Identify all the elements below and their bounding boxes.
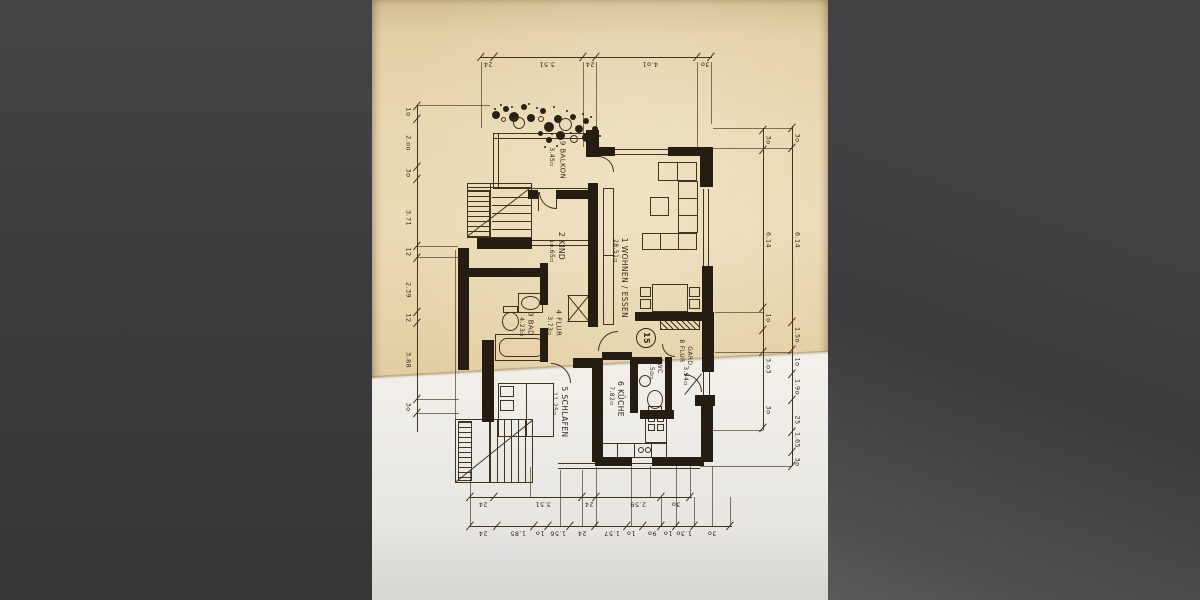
dim-label: 1.65 — [794, 432, 801, 448]
dim-label: 3o — [405, 169, 412, 178]
dim-label: 1.85 — [510, 530, 526, 537]
furniture-rect — [648, 424, 655, 431]
plant-dot — [590, 116, 592, 118]
wall-segment — [588, 183, 598, 327]
dim-line — [763, 128, 764, 430]
furniture-rect — [650, 197, 669, 216]
extension-line — [694, 497, 695, 526]
extension-line — [631, 466, 632, 526]
plant-circle — [575, 125, 583, 133]
plant-circle-outline — [570, 135, 578, 143]
plant-circle-outline — [559, 118, 572, 131]
thin-line — [614, 149, 668, 150]
plant-circle — [540, 108, 546, 114]
wall-segment — [540, 263, 548, 305]
furniture-rect — [500, 386, 514, 397]
dim-label: 3.88 — [405, 352, 412, 368]
hatch-area — [489, 419, 533, 483]
plant-circle — [546, 137, 552, 143]
room-area-balkon: 3.45▫ — [548, 147, 554, 166]
plant-circle — [503, 106, 509, 112]
plant-dot — [570, 132, 572, 134]
plant-circle-outline — [538, 116, 544, 122]
room-label-gard: 8 FLUR — [678, 339, 684, 362]
room-label-schlafen: 5 SCHLAFEN — [560, 387, 568, 438]
plant-circle — [521, 104, 527, 110]
plant-dot — [494, 108, 496, 110]
extension-line — [697, 62, 698, 147]
door-swing-arc — [539, 192, 556, 209]
room-area-wc: 1.5o▫ — [648, 360, 654, 379]
dim-label: 24 — [483, 61, 492, 68]
plant-dot — [511, 106, 513, 108]
dim-label: 3.51 — [535, 501, 551, 508]
room-area-gard: 3.94▫ — [682, 366, 688, 385]
photo-stage: 243.51244.o13o243.51242.593o241.851o1.56… — [0, 0, 1200, 600]
fixture-oval — [638, 447, 644, 453]
plant-dot — [528, 103, 530, 105]
extension-line — [713, 128, 792, 129]
extension-line — [676, 466, 677, 526]
dim-label: 24 — [577, 530, 586, 537]
dim-label: 1.3o — [676, 530, 692, 537]
plant-dot — [500, 104, 502, 106]
dim-label: 3o — [794, 458, 801, 467]
thin-line — [498, 133, 499, 189]
wall-segment — [630, 357, 638, 413]
wall-segment — [477, 238, 532, 249]
room-area-wohnen: 28.51▫ — [612, 239, 618, 263]
extension-line — [661, 497, 662, 526]
wall-segment — [640, 410, 674, 419]
door-swing-arc — [551, 363, 571, 383]
wall-segment — [556, 190, 592, 199]
wall-segment — [528, 190, 538, 199]
extension-line — [711, 62, 712, 124]
dim-label: 24 — [585, 61, 594, 68]
plant-dot — [536, 107, 538, 109]
dim-label: 3.51 — [539, 61, 555, 68]
wall-segment — [592, 358, 603, 462]
dim-label: 24 — [584, 501, 593, 508]
wall-segment — [482, 340, 494, 422]
plant-circle-outline — [513, 117, 525, 129]
furniture-rect — [689, 287, 700, 297]
wall-segment — [458, 248, 469, 370]
furniture-rect — [500, 400, 514, 411]
furniture-rect — [658, 162, 697, 181]
room-label-balkon: 9 BALKON — [558, 141, 565, 179]
fixture-oval — [521, 296, 540, 310]
room-label-bad: 3 BAD — [526, 312, 533, 336]
thin-line — [558, 468, 700, 469]
door-swing-arc — [598, 156, 614, 172]
plant-circle — [538, 131, 543, 136]
extension-line — [713, 148, 792, 149]
dim-label: 1.9o — [794, 379, 801, 395]
furniture-rect — [678, 181, 698, 233]
dim-label: 1o — [536, 530, 545, 537]
dim-label: 3o — [765, 406, 772, 415]
wall-segment — [595, 457, 632, 466]
room-area-schlafen: 11.25▫ — [551, 392, 557, 416]
hatch-area — [458, 421, 472, 481]
dim-label: 1.5o — [794, 327, 801, 343]
fixture-oval — [647, 390, 663, 409]
plant-circle — [570, 114, 576, 120]
thin-line — [708, 189, 709, 267]
dim-label: 3.71 — [405, 210, 412, 226]
dim-label: 24 — [478, 501, 487, 508]
plant-dot — [551, 133, 553, 135]
dim-label: 3o — [701, 61, 710, 68]
thin-line — [614, 154, 668, 155]
dim-label: 1o — [794, 358, 801, 367]
plant-dot — [582, 113, 584, 115]
extension-line — [713, 430, 763, 431]
plant-circle — [544, 122, 554, 132]
plant-circle — [492, 111, 500, 119]
room-label-wohnen: 1 WOHNEN / ESSEN — [620, 238, 628, 318]
dim-label: 9o — [648, 530, 657, 537]
wall-segment — [602, 352, 632, 360]
plant-circle — [527, 114, 535, 122]
furniture-rect — [689, 299, 700, 309]
dim-label: 24 — [478, 530, 487, 537]
furniture-rect — [657, 424, 664, 431]
extension-line — [455, 250, 456, 420]
plant-dot — [544, 146, 546, 148]
extension-line — [582, 470, 583, 526]
dim-label: 1o — [627, 530, 636, 537]
wall-segment — [598, 147, 615, 156]
wall-segment — [702, 312, 714, 372]
extension-line — [417, 413, 459, 414]
extension-line — [417, 257, 458, 258]
extension-line — [417, 105, 490, 106]
thin-line — [703, 372, 704, 397]
thin-line — [703, 189, 704, 267]
plant-dot — [566, 110, 568, 112]
dim-label: 3o — [405, 403, 412, 412]
room-area-bad: 4.23▫ — [518, 317, 524, 336]
dim-line — [417, 105, 418, 432]
furniture-rect — [652, 284, 688, 312]
wall-segment — [701, 404, 713, 462]
plant-dot — [553, 106, 555, 108]
dim-label: 1.56 — [550, 530, 566, 537]
dim-tick — [759, 423, 767, 432]
room-label-kind: 2 KIND — [557, 232, 565, 260]
dim-label: 1o — [405, 108, 412, 117]
extension-line — [690, 466, 691, 497]
dim-label: 6.14 — [765, 232, 772, 248]
dim-label: 1o — [664, 530, 673, 537]
furniture-rect — [600, 443, 667, 458]
dim-label: 12 — [405, 313, 412, 322]
dim-label: 3o — [794, 134, 801, 143]
thin-line — [493, 133, 494, 189]
extension-line — [715, 352, 792, 353]
plant-circle — [583, 118, 589, 124]
room-area-kueche: 7.82▫ — [608, 386, 614, 405]
dim-label: 3o — [672, 501, 681, 508]
plant-dot — [599, 135, 601, 137]
letterbox-right — [828, 0, 1200, 600]
wall-segment — [665, 357, 672, 410]
extension-line — [712, 466, 713, 526]
room-label-wc: 7WC — [656, 358, 662, 373]
dim-label: 3o — [765, 136, 772, 145]
wall-segment — [462, 268, 542, 277]
extension-line — [730, 497, 731, 526]
extension-line — [715, 312, 763, 313]
dim-label: 3.o3 — [765, 358, 772, 374]
fixture-oval — [502, 312, 519, 331]
plant-circle-outline — [501, 117, 506, 122]
dim-label: 6.14 — [794, 232, 801, 248]
extension-line — [417, 399, 459, 400]
extension-line — [700, 466, 792, 467]
dim-label: 12 — [405, 247, 412, 256]
room-label-gard-2: GARD. — [686, 346, 692, 367]
bathtub-inner — [499, 338, 544, 357]
extension-line — [650, 466, 651, 497]
room-area-kind: 1o.65▫ — [548, 239, 554, 262]
door-swing-arc — [598, 331, 618, 351]
dim-label: 2.59 — [630, 501, 646, 508]
dim-label: 4.o1 — [642, 61, 658, 68]
dim-label: 25 — [794, 415, 801, 424]
extension-line — [417, 246, 458, 247]
wall-segment — [652, 457, 704, 466]
dim-label: 1o — [765, 314, 772, 323]
room-area-flur: 3.73▫ — [546, 316, 552, 335]
wall-segment — [700, 147, 713, 187]
extension-line — [481, 62, 482, 128]
dim-label: 3o — [708, 530, 717, 537]
extension-line — [560, 470, 561, 526]
dim-label: 1.57 — [604, 530, 620, 537]
furniture-rect — [640, 299, 651, 309]
room-label-flur: 4 FLUR — [554, 310, 561, 337]
door-swing-arc — [662, 344, 675, 357]
thin-line — [709, 372, 710, 397]
dim-label: 2.39 — [405, 282, 412, 298]
room-label-kueche: 6 KÜCHE — [616, 381, 624, 417]
hatch-area — [660, 320, 700, 330]
dim-label: 2.oo — [405, 135, 412, 151]
unit-badge-label: 15 — [642, 332, 650, 344]
furniture-rect — [640, 287, 651, 297]
furniture-rect — [642, 233, 697, 250]
hatch-area — [467, 190, 490, 237]
plant-circle — [556, 131, 565, 140]
wall-segment — [635, 312, 702, 321]
fixture-oval — [645, 447, 651, 453]
